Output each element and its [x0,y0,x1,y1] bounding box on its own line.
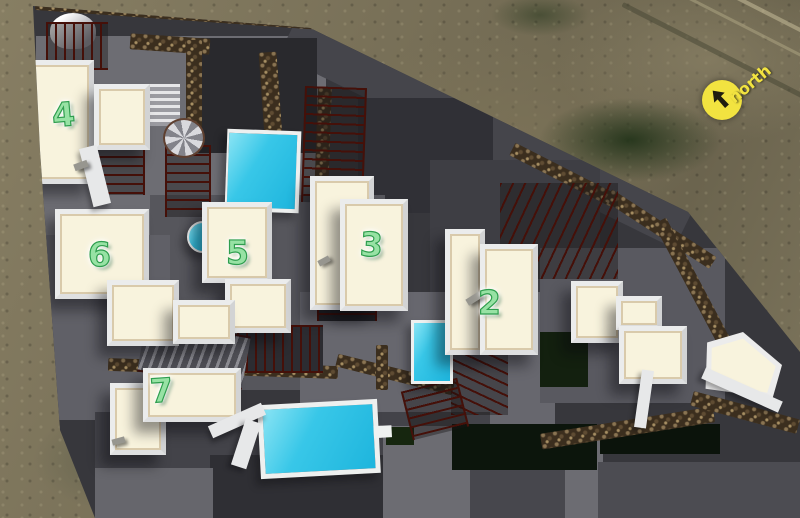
unit-number-3: 3 [359,227,384,261]
unit-number-2: 2 [478,286,501,319]
building-6-lower-roof [107,280,179,346]
ground-terrace [598,462,800,518]
unit-number-4: 4 [51,97,77,132]
building-4-annex-roof [94,84,150,150]
north-indicator: north [690,58,800,144]
pool-top-terrace [225,129,302,214]
building-east-b-roof [616,296,662,330]
unit-number-6: 6 [88,238,111,271]
pool-deck-tab [373,425,392,438]
building-5-side-roof [173,300,235,344]
ground-terrace [95,468,213,518]
pool-main-lower [257,399,381,479]
stone-wall [376,345,388,390]
spiral-staircase [163,118,205,158]
unit-number-5: 5 [226,236,249,269]
site-plan-render: 4 6 5 3 2 7 north [0,0,800,518]
unit-number-7: 7 [149,373,174,408]
